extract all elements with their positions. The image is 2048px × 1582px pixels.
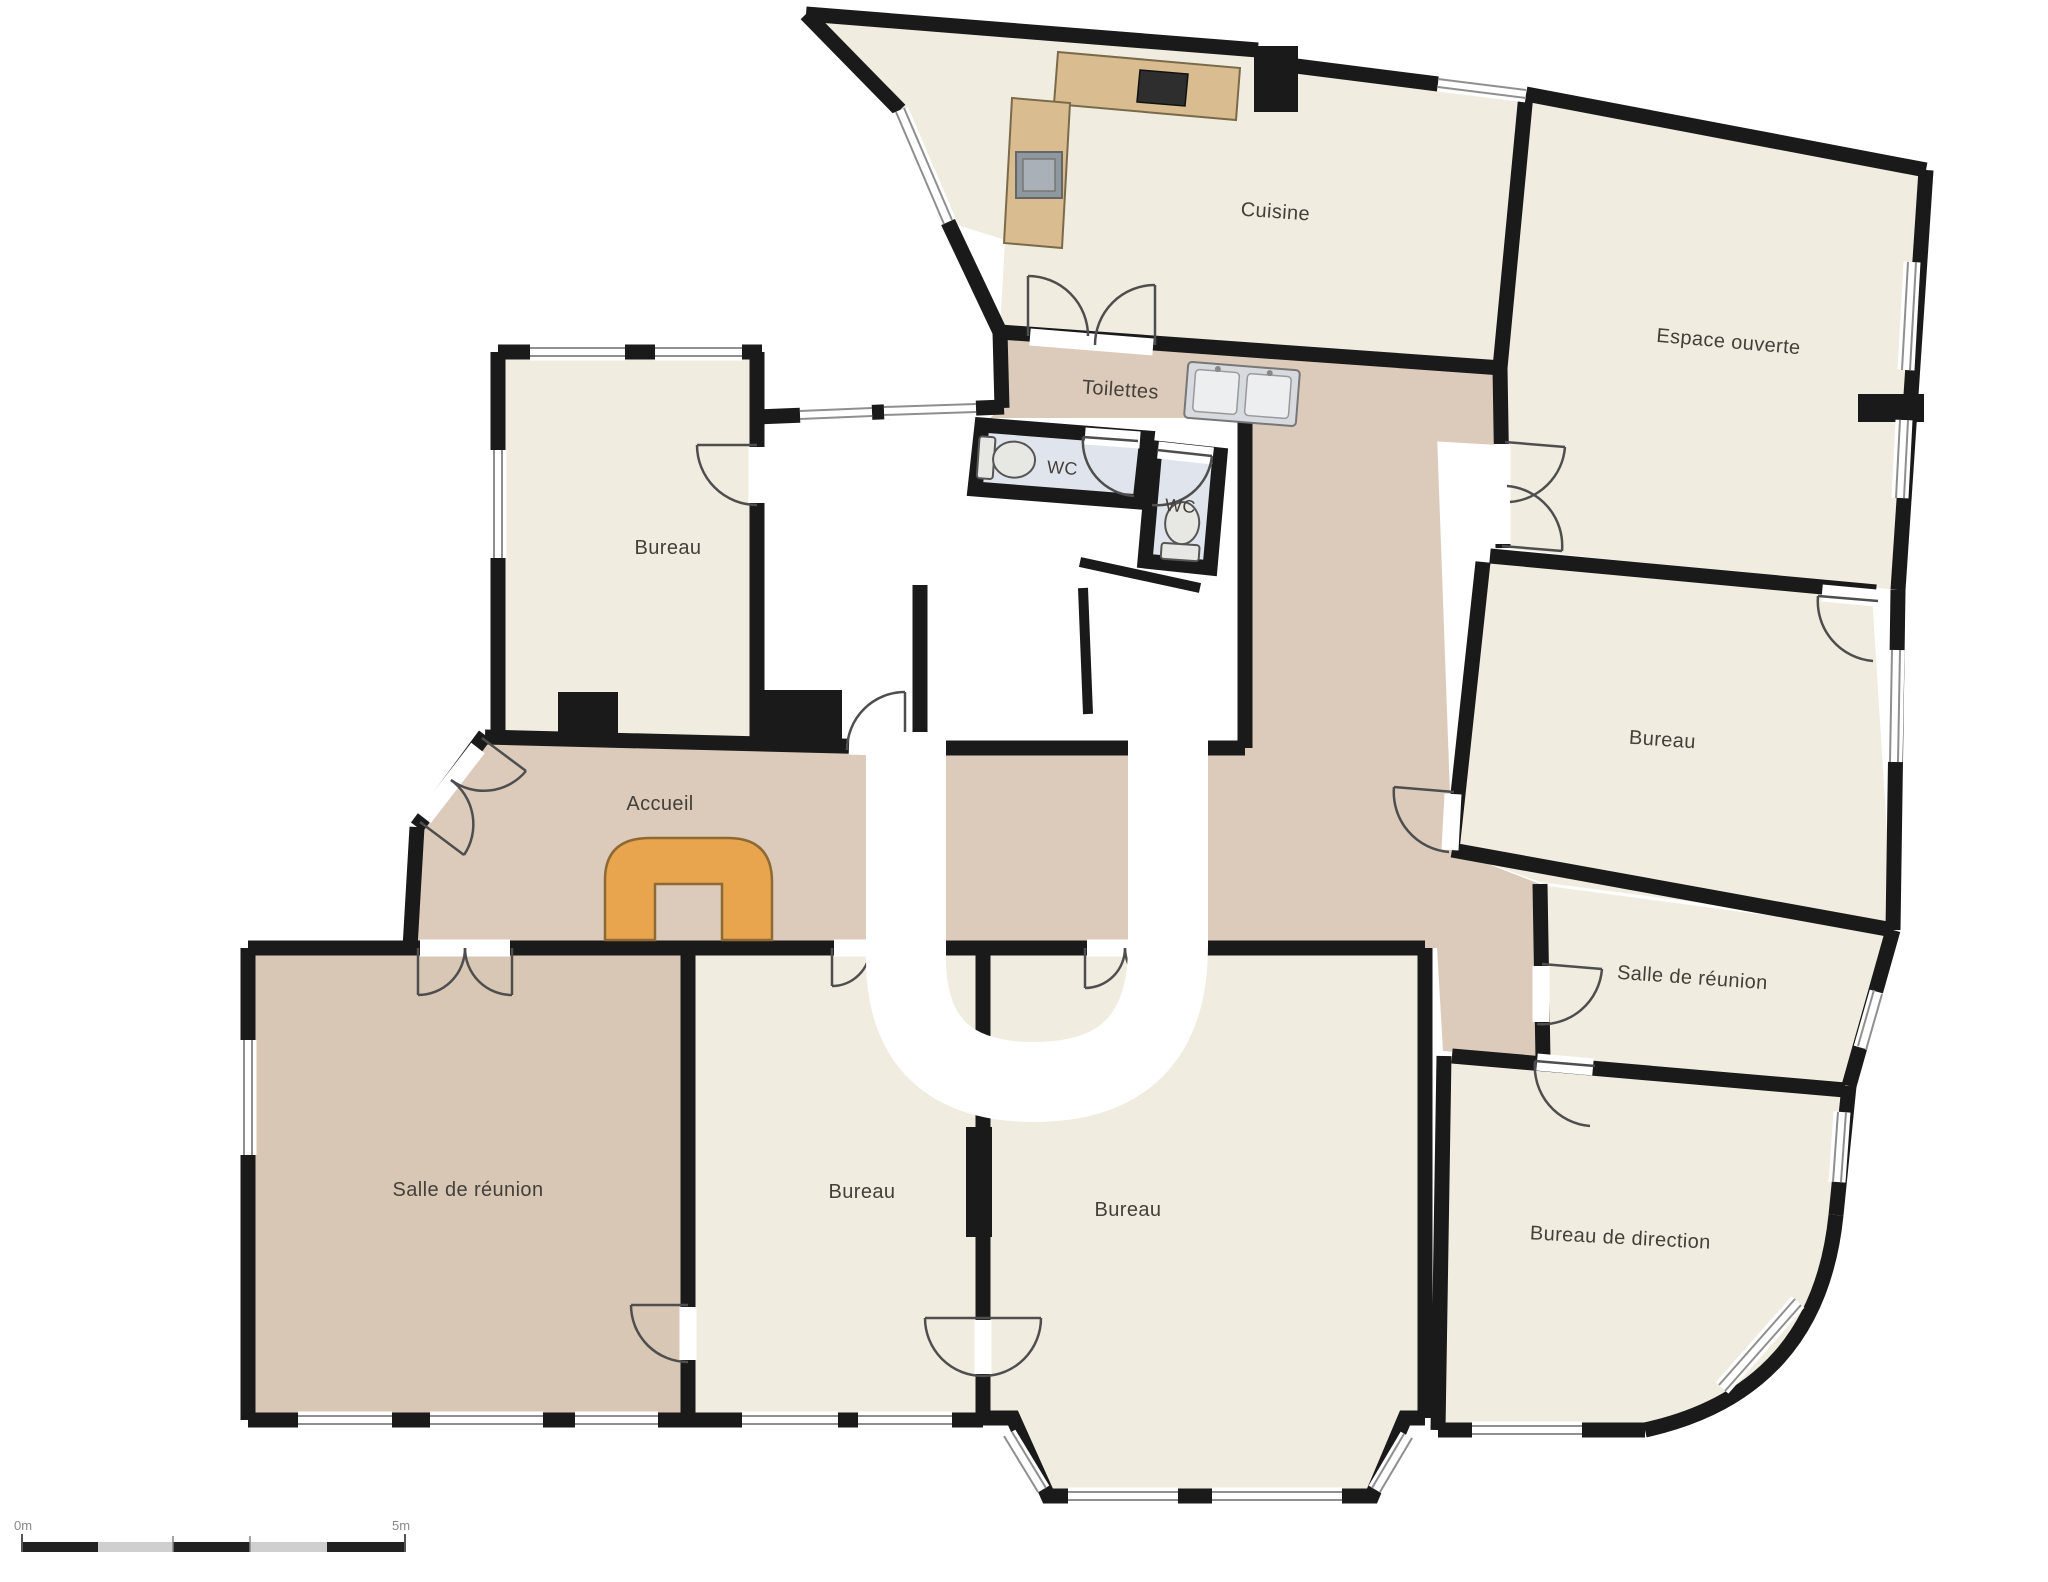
- window: [1896, 420, 1908, 498]
- window: [1890, 650, 1900, 762]
- scale-end-label: 5m: [392, 1518, 410, 1533]
- room-bureau-top-left: [498, 352, 757, 740]
- double-sink-icon: [1184, 362, 1300, 427]
- label-bureau-right: Bureau: [1628, 727, 1696, 754]
- floor-plan: Cuisine Espace ouverte Toilettes WC WC B…: [0, 0, 2048, 1582]
- scale-bar: 0m 5m: [14, 1518, 410, 1552]
- stove-icon: [1137, 70, 1188, 106]
- label-wc-left: WC: [1046, 457, 1078, 479]
- label-wc-right: WC: [1164, 495, 1196, 517]
- wall-pier: [558, 692, 618, 742]
- scale-start-label: 0m: [14, 1518, 32, 1533]
- window: [1212, 1492, 1342, 1500]
- wall-pier: [966, 1127, 992, 1237]
- window: [575, 1416, 658, 1424]
- label-salle-reunion-left: Salle de réunion: [393, 1179, 544, 1201]
- window: [530, 348, 625, 356]
- window: [1902, 262, 1916, 370]
- window: [1068, 1492, 1178, 1500]
- window: [655, 348, 742, 356]
- label-bureau-bottom-2: Bureau: [1095, 1199, 1162, 1221]
- window: [858, 1416, 952, 1424]
- label-bureau-top-left: Bureau: [635, 537, 702, 559]
- label-accueil: Accueil: [626, 793, 693, 815]
- window: [742, 1416, 838, 1424]
- window: [800, 408, 872, 419]
- wall-pier: [1858, 394, 1924, 422]
- wall-pier: [758, 690, 842, 748]
- label-bureau-bottom-1: Bureau: [829, 1181, 896, 1203]
- kitchen-sink-icon: [1016, 152, 1062, 198]
- room-bureau-bottom-2: [983, 948, 1425, 1496]
- window: [430, 1416, 543, 1424]
- window: [244, 1040, 252, 1155]
- wall-pier: [1254, 46, 1298, 112]
- window: [1833, 1112, 1846, 1182]
- floor-plan-svg: Cuisine Espace ouverte Toilettes WC WC B…: [0, 0, 2048, 1582]
- window: [494, 450, 502, 558]
- window: [1472, 1426, 1582, 1434]
- window: [884, 404, 976, 415]
- window: [298, 1416, 392, 1424]
